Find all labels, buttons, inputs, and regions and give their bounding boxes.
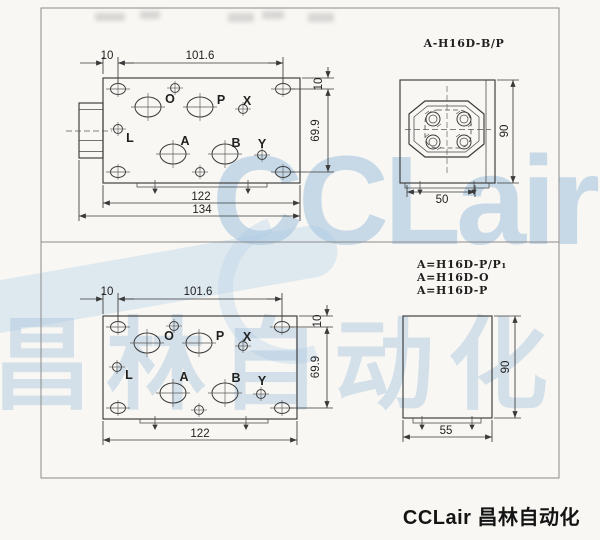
model-label-1: A=H16D-P/P₁ — [416, 258, 507, 271]
port-label-b: B — [231, 371, 240, 385]
dim-pitch: 101.6 — [184, 286, 213, 298]
bottom-side-view: A=H16D-P/P₁ A=H16D-O A=H16D-P 90 55 — [403, 258, 521, 442]
dim-side-depth: 55 — [440, 425, 453, 437]
mount-bracket — [413, 418, 481, 423]
dim-v-offset: 10 — [312, 315, 324, 328]
dim-total-width: 134 — [192, 204, 212, 216]
mount-bracket — [137, 183, 267, 187]
mount-bracket — [405, 183, 489, 188]
dim-bottom: 122 — [103, 421, 297, 445]
port-label-y: Y — [258, 374, 267, 388]
top-side-view: A-H16D-B/P 90 50 — [400, 37, 519, 206]
dim-v-offset: 10 — [313, 78, 325, 91]
port-label-o: O — [165, 92, 175, 106]
port-label-a: A — [179, 370, 188, 384]
dim-pitch: 101.6 — [186, 50, 215, 62]
bottom-front-view: O P X L A B Y 10 101.6 122 — [80, 286, 333, 445]
dim-v-pitch: 69.9 — [310, 356, 322, 378]
port-label-y: Y — [258, 137, 267, 151]
valve-face-inner — [414, 106, 479, 152]
valve-face-outline — [409, 101, 484, 157]
port-label-x: X — [243, 330, 252, 344]
port-label-p: P — [216, 329, 224, 343]
port-label-o: O — [164, 329, 174, 343]
drawing-canvas: O P X L A B Y 10 101.6 — [0, 0, 600, 540]
dim-side-height: 90 — [499, 125, 511, 138]
model-label-2: A=H16D-O — [416, 271, 489, 284]
footer-brand: CCLair 昌林自动化 — [403, 501, 580, 530]
dim-width: 122 — [191, 191, 210, 203]
dim-height: 90 — [497, 80, 519, 183]
port-label-a: A — [180, 134, 189, 148]
dim-height: 90 — [494, 316, 521, 418]
dim-width: 122 — [190, 428, 209, 440]
port-label-p: P — [217, 93, 225, 107]
dim-right: 10 69.9 — [291, 67, 334, 172]
dim-v-pitch: 69.9 — [310, 119, 322, 141]
bolt-circle — [425, 110, 471, 148]
scanned-drawing-page: CCLair 昌林自动化 — [0, 0, 600, 540]
mount-bracket — [140, 419, 268, 423]
model-label-3: A=H16D-P — [416, 284, 488, 297]
port-label-b: B — [231, 136, 240, 150]
port-label-l: L — [125, 368, 133, 382]
dim-offset: 10 — [101, 50, 114, 62]
dim-side-height: 90 — [500, 361, 512, 374]
top-front-view: O P X L A B Y 10 101.6 — [66, 50, 334, 221]
model-label: A-H16D-B/P — [423, 37, 505, 50]
port-label-l: L — [126, 131, 134, 145]
side-connector — [66, 103, 112, 158]
port-label-x: X — [243, 94, 252, 108]
dim-offset: 10 — [101, 286, 114, 298]
dim-side-depth: 50 — [436, 194, 449, 206]
